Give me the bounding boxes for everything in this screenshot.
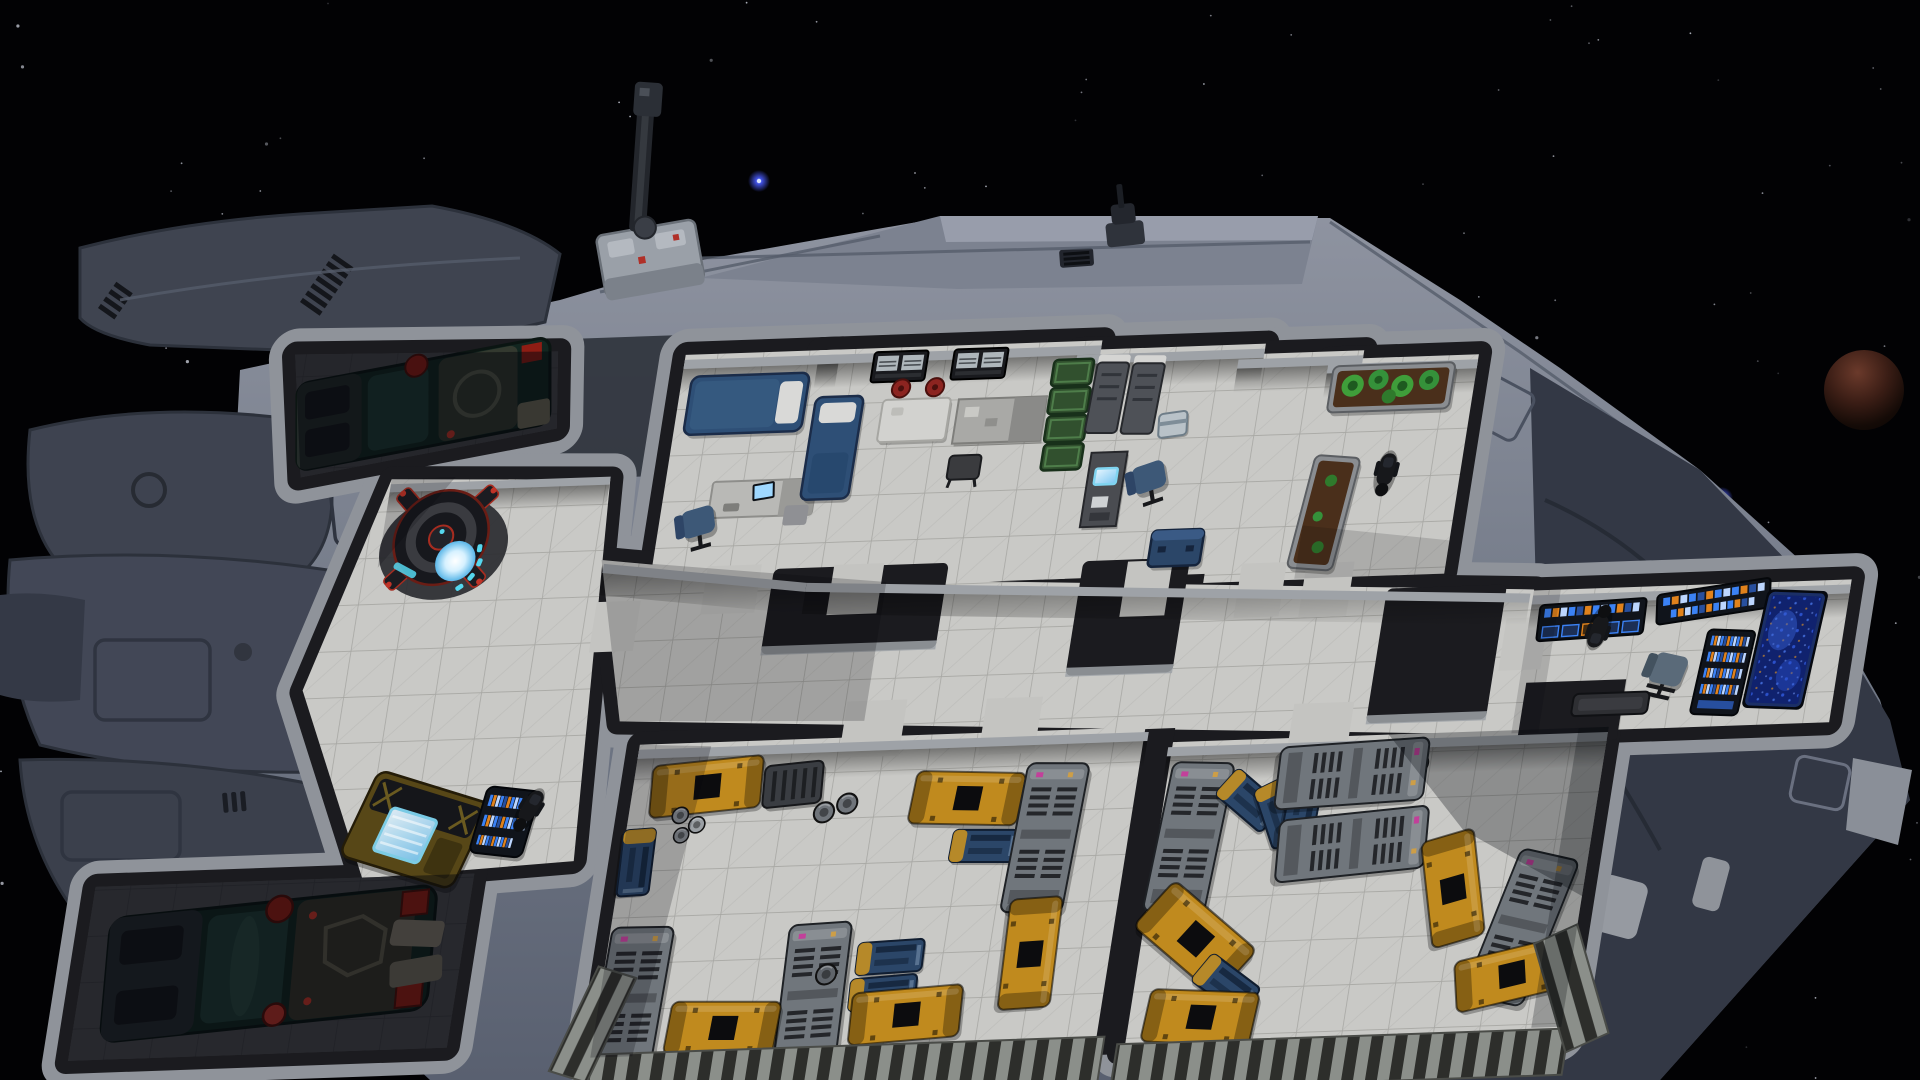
storage-desk-screen [1094,468,1119,485]
game-viewport[interactable] [0,0,1920,1080]
cargo-crate-blue[interactable] [855,938,928,978]
wall-monitors-2[interactable] [950,348,1009,380]
cargo-container-yellow[interactable] [1417,828,1485,953]
cargo-crate-dark[interactable] [762,760,828,812]
pillow [818,402,857,423]
bridge-low-table[interactable] [1571,691,1650,716]
blue-storage-crate[interactable] [1146,529,1207,571]
cooler-box[interactable] [1158,410,1190,440]
hull-deck-vent [1059,248,1094,268]
game-window [0,0,1920,1080]
cargo-container-yellow[interactable] [847,984,967,1050]
planter-bed-1[interactable] [1326,362,1459,417]
planet [1824,350,1904,430]
bed-cabin[interactable] [682,372,813,439]
wall-monitors-1[interactable] [870,350,929,382]
cargo-container-yellow[interactable] [906,771,1030,829]
mess-counter[interactable] [951,396,1048,446]
fore-engine-room [68,874,474,1061]
